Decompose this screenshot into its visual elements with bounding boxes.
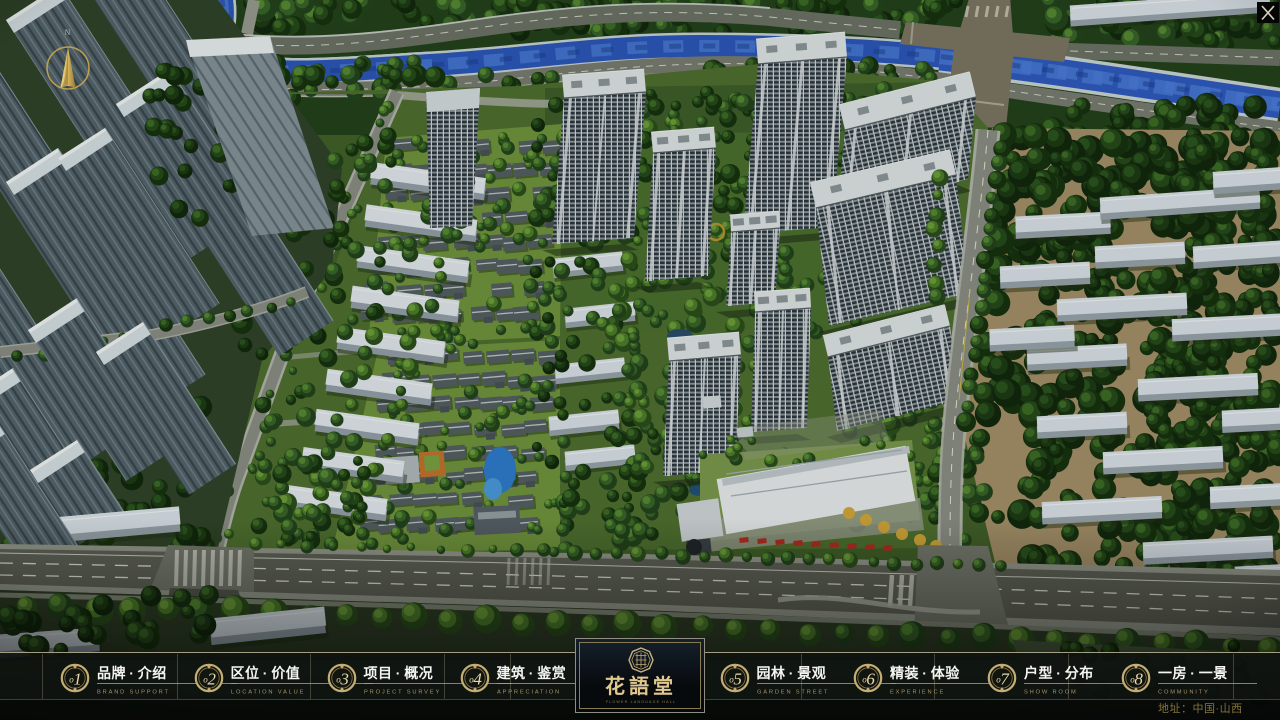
- svg-text:N: N: [65, 28, 71, 37]
- svg-text:3: 3: [339, 670, 349, 689]
- svg-text:4: 4: [473, 670, 482, 689]
- svg-text:FLOWER LANGUAGE HALL: FLOWER LANGUAGE HALL: [606, 700, 676, 704]
- svg-text:8: 8: [1134, 670, 1143, 689]
- svg-text:7: 7: [1000, 670, 1010, 689]
- svg-text:6: 6: [866, 670, 875, 689]
- svg-text:5: 5: [733, 670, 742, 689]
- svg-text:1: 1: [73, 670, 82, 689]
- svg-text:花語堂: 花語堂: [605, 674, 677, 698]
- svg-text:2: 2: [207, 670, 216, 689]
